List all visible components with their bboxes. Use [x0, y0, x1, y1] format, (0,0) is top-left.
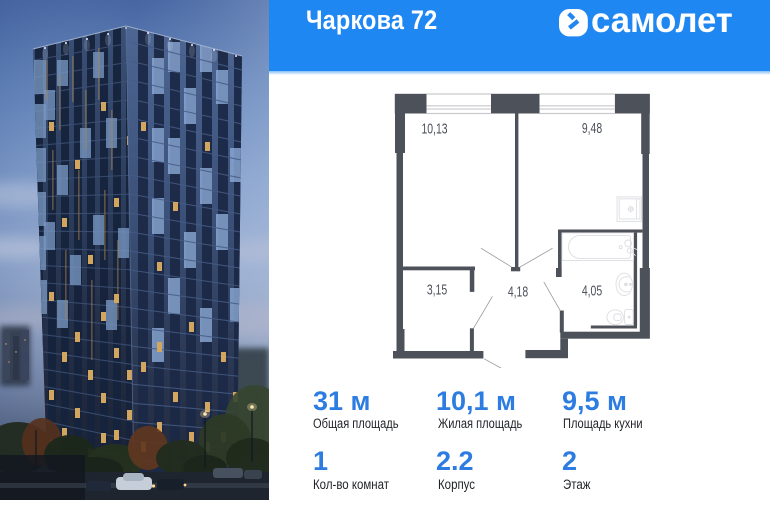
svg-text:10,13: 10,13 — [421, 121, 447, 137]
svg-text:4,05: 4,05 — [582, 283, 602, 299]
svg-text:9,48: 9,48 — [582, 120, 602, 136]
svg-text:3,15: 3,15 — [427, 282, 447, 298]
svg-text:4,18: 4,18 — [508, 284, 528, 300]
